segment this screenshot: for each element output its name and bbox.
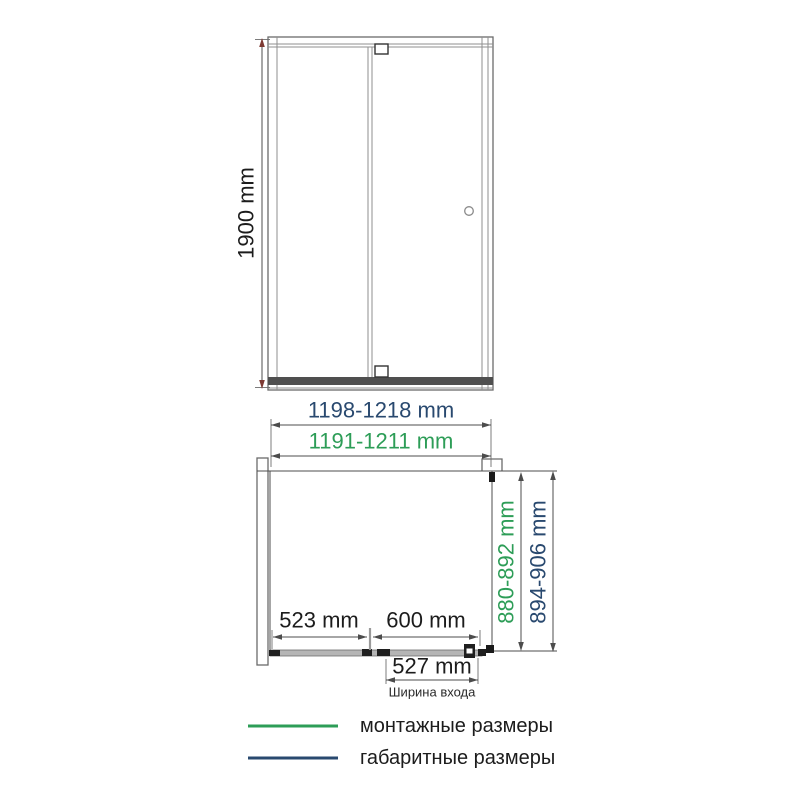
- fixed-panel-label: 523 mm: [279, 608, 358, 633]
- plan-top-right-step: [482, 459, 502, 471]
- mounting-width-dimension: 1191-1211 mm: [271, 429, 491, 459]
- plan-left-wall-strip: [257, 458, 268, 665]
- door-width-arrow-left: [373, 634, 382, 640]
- mounting-depth-label: 880-892 mm: [494, 500, 519, 624]
- overall-depth-label: 894-906 mm: [526, 500, 551, 624]
- mounting-width-arrow-left: [271, 453, 280, 459]
- legend-overall-label: габаритные размеры: [360, 747, 555, 769]
- door-width-dimension: 600 mm: [373, 608, 480, 647]
- mounting-depth-arrow-up: [518, 472, 524, 481]
- door-width-label: 600 mm: [386, 608, 465, 633]
- front-view: [268, 37, 493, 390]
- height-dimension: 1900 mm: [234, 38, 271, 389]
- plan-track-block-mid-2: [377, 649, 390, 656]
- top-hinge-icon: [375, 44, 388, 54]
- mounting-width-arrow-right: [482, 453, 491, 459]
- door-width-arrow-right: [469, 634, 478, 640]
- overall-width-arrow-left: [271, 422, 280, 428]
- bottom-rail-bar: [268, 377, 493, 385]
- bottom-hinge-icon: [375, 366, 388, 377]
- door-handle-icon: [465, 207, 474, 216]
- plan-track-block-left: [269, 650, 280, 656]
- plan-wall-block-top: [489, 472, 495, 482]
- mounting-depth-arrow-down: [518, 642, 524, 651]
- fixed-panel-arrow-left: [273, 634, 282, 640]
- fixed-panel-arrow-right: [358, 634, 367, 640]
- dimension-drawing-page: 1900 mm 1198-1218 mm 1191-1211 mm: [0, 0, 800, 800]
- entry-width-dimension: 527 mm Ширина входа: [386, 654, 478, 700]
- overall-width-arrow-right: [482, 422, 491, 428]
- plan-track-block-right: [478, 649, 486, 656]
- overall-depth-dimension: 894-906 mm: [526, 471, 556, 652]
- overall-width-label: 1198-1218 mm: [308, 398, 454, 423]
- fixed-panel-dimension: 523 mm: [272, 608, 370, 651]
- overall-depth-arrow-up: [550, 471, 556, 480]
- legend-mounting-label: монтажные размеры: [360, 715, 553, 737]
- shower-enclosure-drawing: 1900 mm 1198-1218 mm 1191-1211 mm: [0, 0, 800, 800]
- plan-track-block-mid-1: [362, 649, 372, 656]
- height-label: 1900 mm: [234, 167, 259, 259]
- mounting-depth-dimension: 880-892 mm: [494, 472, 524, 651]
- plan-wall-block-bottom: [486, 645, 494, 653]
- entry-width-caption: Ширина входа: [389, 685, 476, 700]
- mounting-width-label: 1191-1211 mm: [309, 429, 454, 454]
- entry-width-label: 527 mm: [392, 654, 471, 679]
- legend: монтажные размеры габаритные размеры: [248, 715, 555, 769]
- front-outline: [268, 37, 493, 390]
